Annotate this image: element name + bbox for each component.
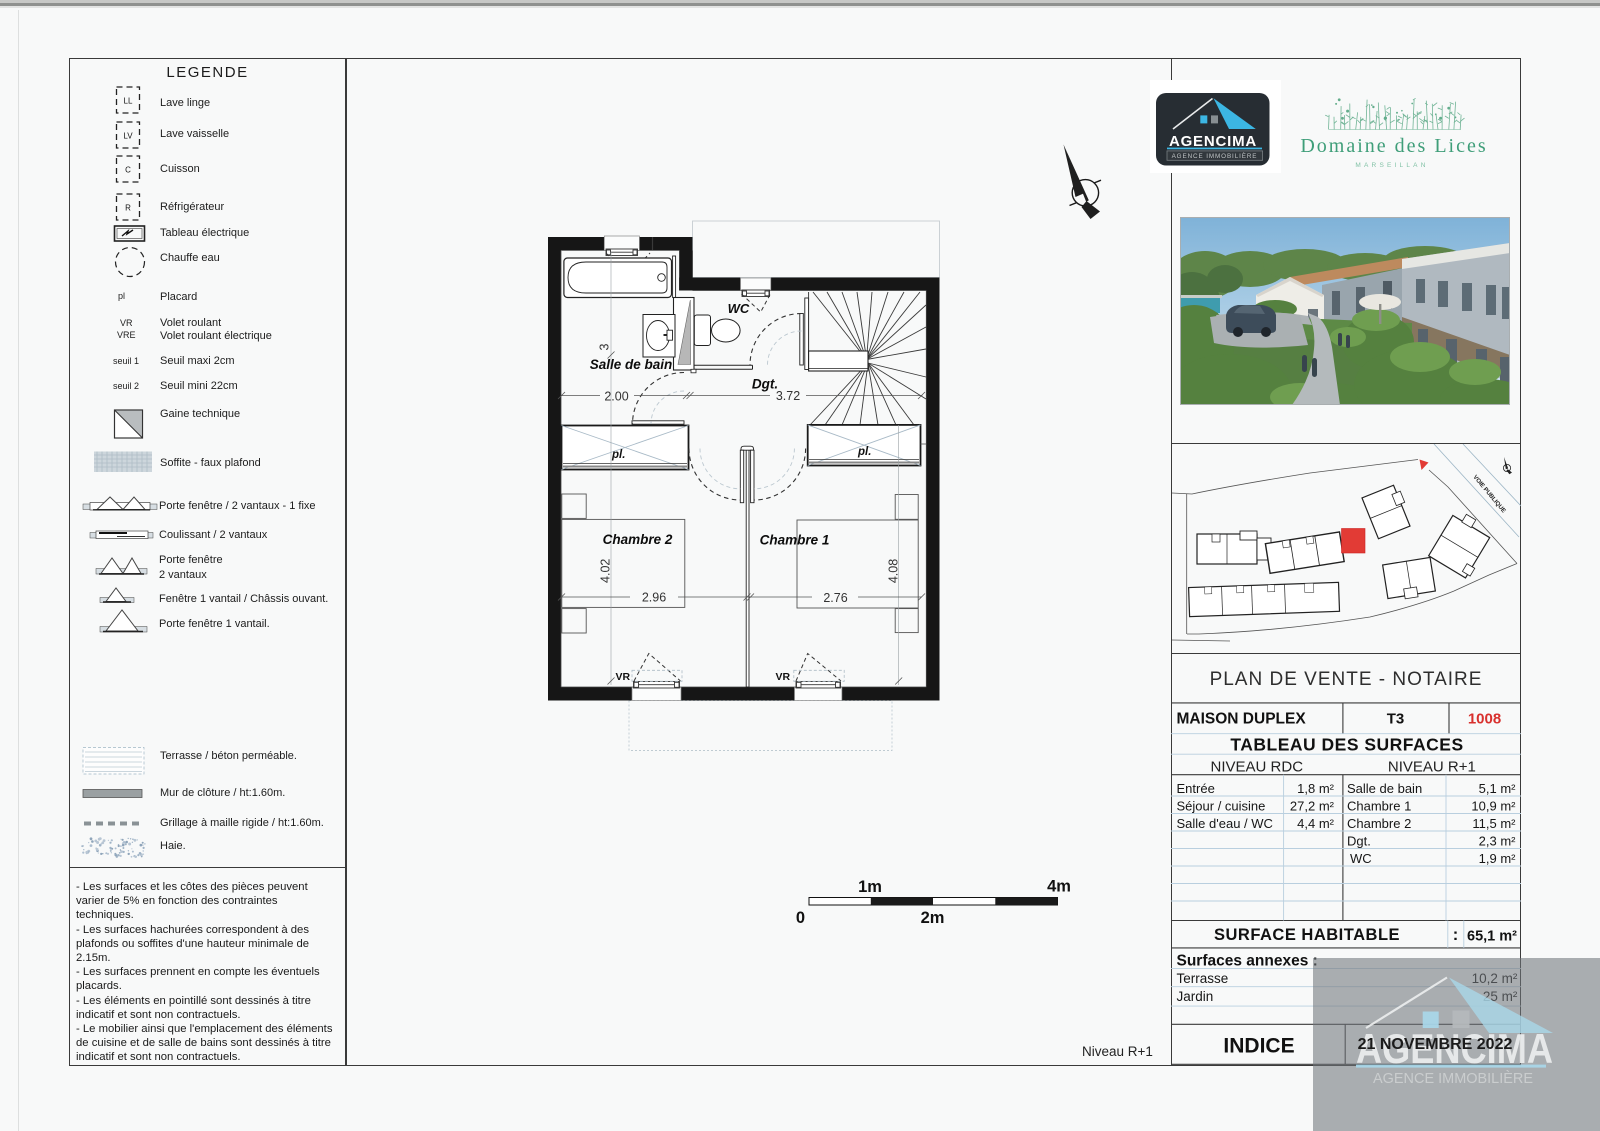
svg-text:0: 0 (796, 909, 805, 927)
svg-text:AGENCIMA: AGENCIMA (1169, 133, 1257, 150)
svg-text:Chambre 2: Chambre 2 (603, 532, 673, 547)
svg-text:3.72: 3.72 (776, 389, 800, 403)
svg-text:Salle de bain: Salle de bain (1347, 781, 1422, 796)
svg-text:Jardin: Jardin (1177, 989, 1214, 1004)
svg-text:AGENCE IMMOBILIÈRE: AGENCE IMMOBILIÈRE (1373, 1070, 1533, 1087)
svg-text:5,1 m²: 5,1 m² (1479, 781, 1517, 796)
svg-text:10,9 m²: 10,9 m² (1471, 798, 1516, 813)
svg-text:T3: T3 (1387, 711, 1405, 728)
svg-text:4.08: 4.08 (887, 559, 901, 583)
svg-text:65,1 m²: 65,1 m² (1467, 929, 1517, 945)
svg-text::: : (1453, 926, 1459, 944)
svg-text:LV: LV (123, 132, 133, 141)
svg-text:4.02: 4.02 (599, 559, 613, 583)
svg-text:pl.: pl. (857, 446, 871, 458)
svg-text:MARSEILLAN: MARSEILLAN (1355, 162, 1428, 169)
svg-text:1m: 1m (858, 878, 882, 896)
svg-text:2.00: 2.00 (604, 390, 628, 404)
svg-text:AGENCE IMMOBILIÈRE: AGENCE IMMOBILIÈRE (1172, 151, 1258, 160)
svg-text:INDICE: INDICE (1223, 1035, 1294, 1058)
svg-text:Dgt.: Dgt. (1347, 834, 1371, 849)
svg-text:VR: VR (616, 671, 631, 683)
svg-text:2m: 2m (921, 909, 945, 927)
svg-text:Terrasse: Terrasse (1177, 971, 1229, 986)
svg-text:Chambre 1: Chambre 1 (760, 533, 830, 548)
svg-text:Chambre 2: Chambre 2 (1347, 816, 1411, 831)
svg-text:Domaine des Lices: Domaine des Lices (1300, 135, 1487, 157)
svg-text:NIVEAU R+1: NIVEAU R+1 (1388, 759, 1476, 776)
svg-text:Chambre 1: Chambre 1 (1347, 798, 1411, 813)
svg-text:1,9 m²: 1,9 m² (1479, 851, 1517, 866)
svg-text:27,2 m²: 27,2 m² (1290, 798, 1335, 813)
svg-text:3: 3 (598, 343, 612, 350)
svg-text:PLAN DE VENTE - NOTAIRE: PLAN DE VENTE - NOTAIRE (1210, 669, 1483, 690)
svg-text:1008: 1008 (1468, 711, 1501, 728)
svg-text:VOIE PUBLIQUE: VOIE PUBLIQUE (1471, 474, 1506, 514)
svg-text:1,8 m²: 1,8 m² (1297, 781, 1335, 796)
svg-text:TABLEAU DES SURFACES: TABLEAU DES SURFACES (1230, 735, 1463, 755)
svg-text:LL: LL (124, 97, 133, 106)
svg-text:Entrée: Entrée (1177, 781, 1215, 796)
svg-text:2.96: 2.96 (642, 591, 666, 605)
svg-text:SURFACE HABITABLE: SURFACE HABITABLE (1214, 926, 1400, 944)
svg-text:Dgt.: Dgt. (752, 377, 778, 392)
svg-text:VR: VR (776, 671, 791, 683)
svg-text:WC: WC (728, 301, 750, 316)
svg-text:NIVEAU RDC: NIVEAU RDC (1211, 759, 1304, 776)
svg-text:C: C (125, 166, 131, 175)
svg-text:2.76: 2.76 (823, 591, 847, 605)
svg-text:Surfaces annexes :: Surfaces annexes : (1177, 952, 1318, 969)
svg-text:MAISON DUPLEX: MAISON DUPLEX (1177, 711, 1307, 728)
svg-text:11,5 m²: 11,5 m² (1472, 816, 1516, 831)
svg-text:pl.: pl. (611, 449, 625, 461)
svg-text:4m: 4m (1047, 878, 1071, 896)
svg-text:WC: WC (1350, 851, 1372, 866)
svg-text:R: R (125, 204, 131, 213)
svg-text:Salle d'eau / WC: Salle d'eau / WC (1177, 816, 1273, 831)
svg-text:Séjour / cuisine: Séjour / cuisine (1177, 798, 1266, 813)
svg-text:Salle de bain: Salle de bain (590, 357, 673, 372)
svg-text:4,4 m²: 4,4 m² (1297, 816, 1335, 831)
svg-text:2,3 m²: 2,3 m² (1479, 834, 1517, 849)
